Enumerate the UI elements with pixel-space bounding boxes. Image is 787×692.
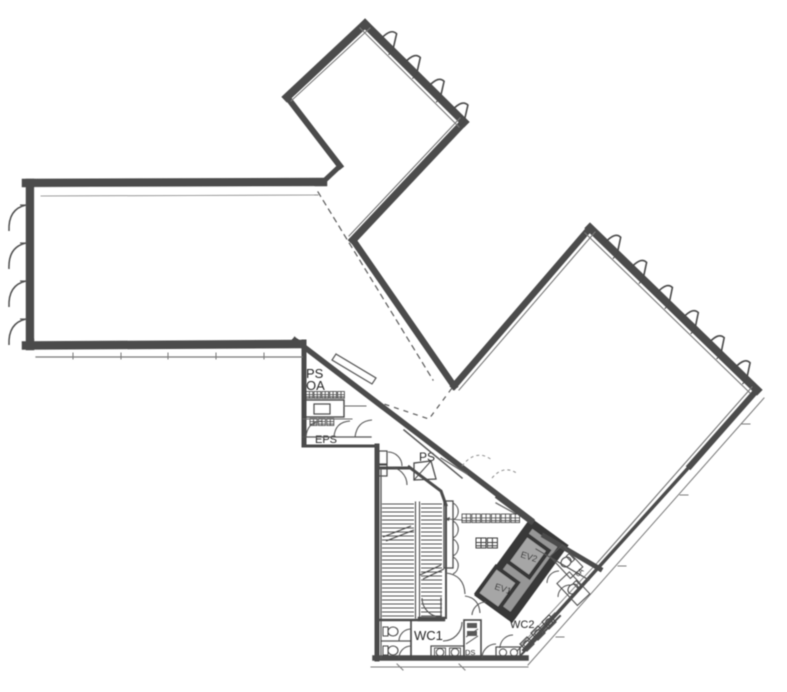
svg-text:WC1: WC1	[414, 628, 443, 643]
svg-text:DS: DS	[465, 648, 475, 657]
svg-text:OA: OA	[306, 378, 325, 393]
svg-text:WC2: WC2	[510, 619, 534, 631]
svg-text:PS: PS	[419, 450, 435, 464]
